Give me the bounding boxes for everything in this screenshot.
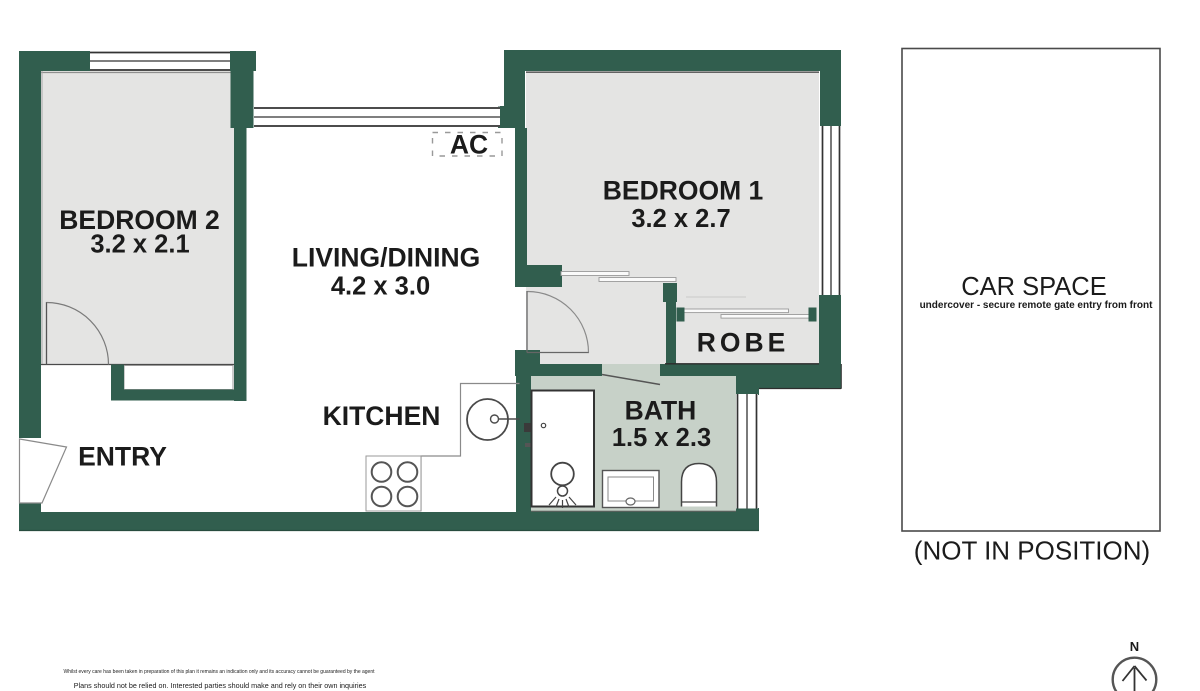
svg-text:3.2 x 2.1: 3.2 x 2.1 — [90, 231, 189, 259]
svg-text:BEDROOM 1: BEDROOM 1 — [603, 176, 764, 206]
svg-text:KITCHEN: KITCHEN — [323, 401, 441, 431]
svg-text:1.5 x 2.3: 1.5 x 2.3 — [612, 424, 711, 452]
svg-text:Whilst every care has been tak: Whilst every care has been taken in prep… — [63, 669, 375, 675]
svg-text:(NOT IN POSITION): (NOT IN POSITION) — [914, 536, 1150, 566]
svg-text:BATH: BATH — [625, 396, 697, 426]
svg-text:AC: AC — [450, 130, 488, 160]
svg-text:undercover - secure remote gat: undercover - secure remote gate entry fr… — [920, 300, 1154, 311]
svg-text:N: N — [1130, 639, 1139, 654]
svg-text:Plans should not be relied on.: Plans should not be relied on. Intereste… — [74, 681, 367, 690]
svg-text:ROBE: ROBE — [697, 328, 790, 358]
svg-text:ENTRY: ENTRY — [78, 442, 167, 472]
svg-text:LIVING/DINING: LIVING/DINING — [292, 243, 480, 273]
svg-text:4.2 x 3.0: 4.2 x 3.0 — [331, 273, 430, 301]
svg-text:CAR SPACE: CAR SPACE — [961, 273, 1106, 301]
svg-text:3.2 x 2.7: 3.2 x 2.7 — [631, 205, 730, 233]
